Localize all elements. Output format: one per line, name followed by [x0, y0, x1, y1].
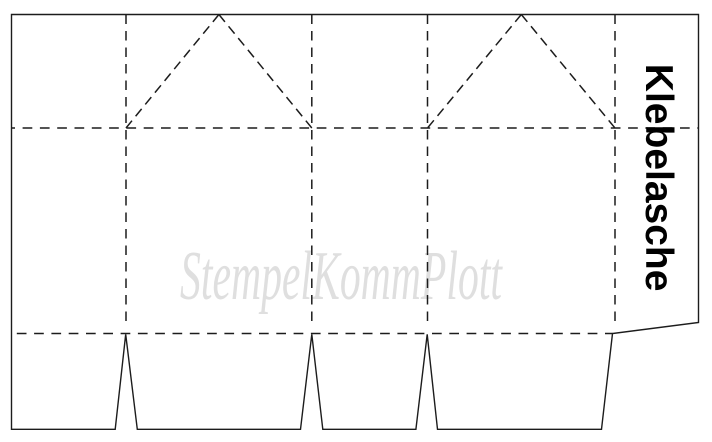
- svg-text:Klebelasche: Klebelasche: [637, 64, 680, 292]
- svg-text:StempelKommPlott: StempelKommPlott: [180, 238, 503, 315]
